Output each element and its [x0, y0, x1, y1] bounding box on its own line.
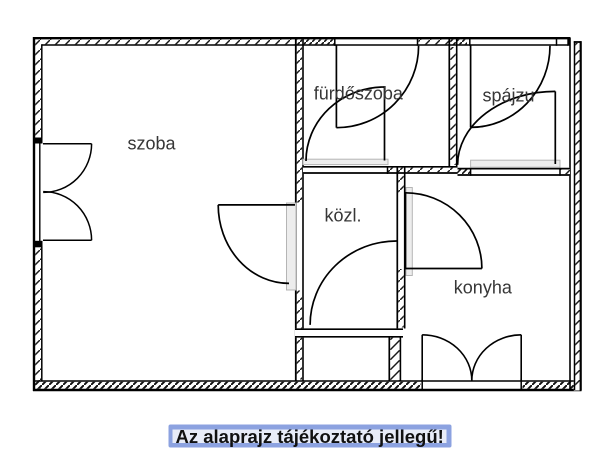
svg-text:közl.: közl.	[325, 205, 362, 225]
svg-text:Az alaprajz tájékoztató jelleg: Az alaprajz tájékoztató jellegű!	[176, 426, 444, 447]
svg-text:szoba: szoba	[128, 134, 177, 154]
svg-text:fürdőszoba: fürdőszoba	[314, 83, 404, 103]
svg-text:konyha: konyha	[454, 278, 513, 298]
svg-text:spájzu: spájzu	[483, 86, 535, 106]
